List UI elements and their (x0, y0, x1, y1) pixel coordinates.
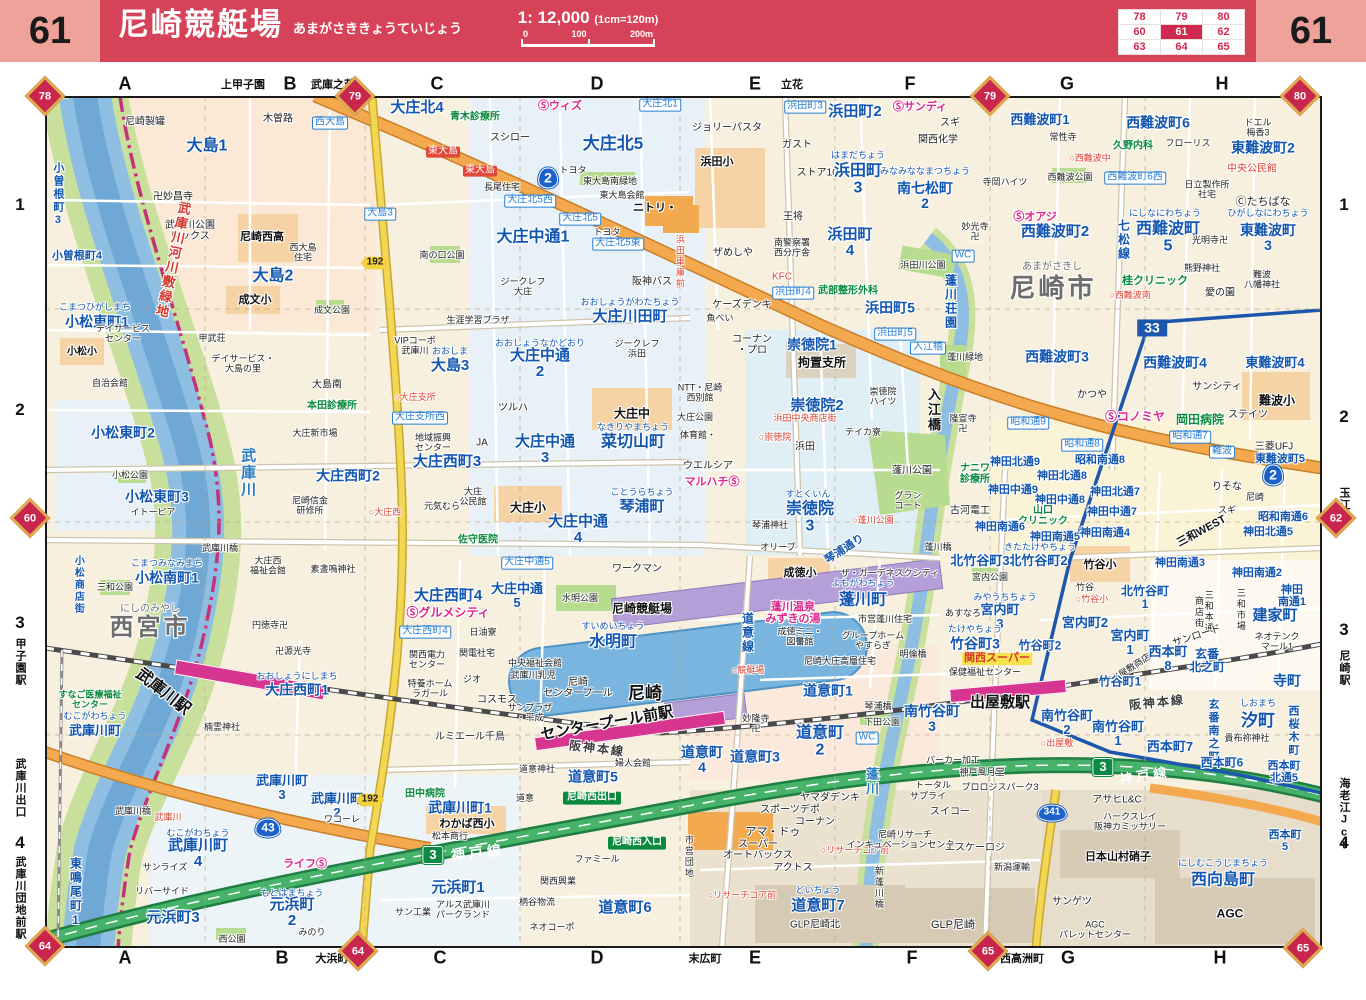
grid-number-left: 2 (15, 400, 24, 420)
grid-letter-bottom: C (434, 948, 447, 969)
atlas-page: 61 尼崎競艇場 あまがさききょうていじょう 1: 12,000 (1cm=12… (0, 0, 1366, 1000)
grid-letter-top: F (905, 74, 916, 95)
grid-letter-top: D (591, 74, 604, 95)
grid-number-left: 3 (15, 613, 24, 633)
grid-letter-top: H (1216, 74, 1229, 95)
grid-number-right: 3 (1339, 620, 1348, 640)
edge-place-left: 武庫川出口 (12, 758, 28, 818)
edge-place-right: 尼崎駅 (1336, 650, 1352, 686)
edge-place-top: 立花 (781, 76, 803, 92)
edge-place-left: 武庫川団地前駅 (12, 856, 28, 940)
grid-letter-bottom: A (119, 948, 132, 969)
grid-number-right: 2 (1339, 407, 1348, 427)
grid-number-right: 1 (1339, 195, 1348, 215)
grid-letter-bottom: E (749, 948, 761, 969)
edge-place-bottom: 末広町 (689, 950, 722, 966)
grid-letter-top: G (1060, 74, 1074, 95)
grid-letter-bottom: G (1061, 948, 1075, 969)
grid-letter-bottom: B (276, 948, 289, 969)
grid-number-left: 1 (15, 195, 24, 215)
grid-letter-bottom: F (907, 948, 918, 969)
grid-letter-bottom: H (1214, 948, 1227, 969)
grid-letter-top: A (119, 74, 132, 95)
grid-letter-bottom: D (591, 948, 604, 969)
map-graphics (0, 0, 1366, 1000)
edge-place-right: 海老江Jct (1336, 778, 1352, 853)
edge-place-top: 上甲子園 (221, 76, 265, 92)
grid-letter-top: E (749, 74, 761, 95)
grid-number-left: 4 (15, 833, 24, 853)
edge-place-left: 甲子園駅 (12, 638, 28, 686)
grid-letter-top: B (284, 74, 297, 95)
grid-letter-top: C (431, 74, 444, 95)
